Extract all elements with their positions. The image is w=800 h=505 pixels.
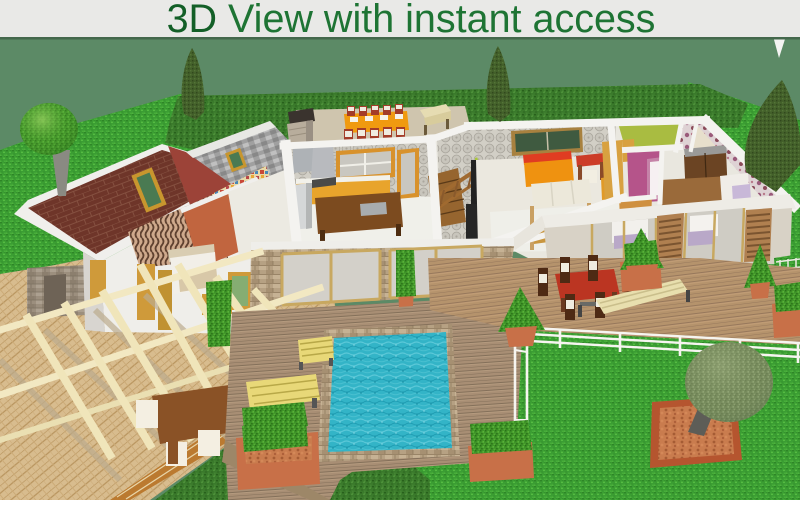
- svg-text:3D View with instant access: 3D View with instant access: [167, 0, 656, 41]
